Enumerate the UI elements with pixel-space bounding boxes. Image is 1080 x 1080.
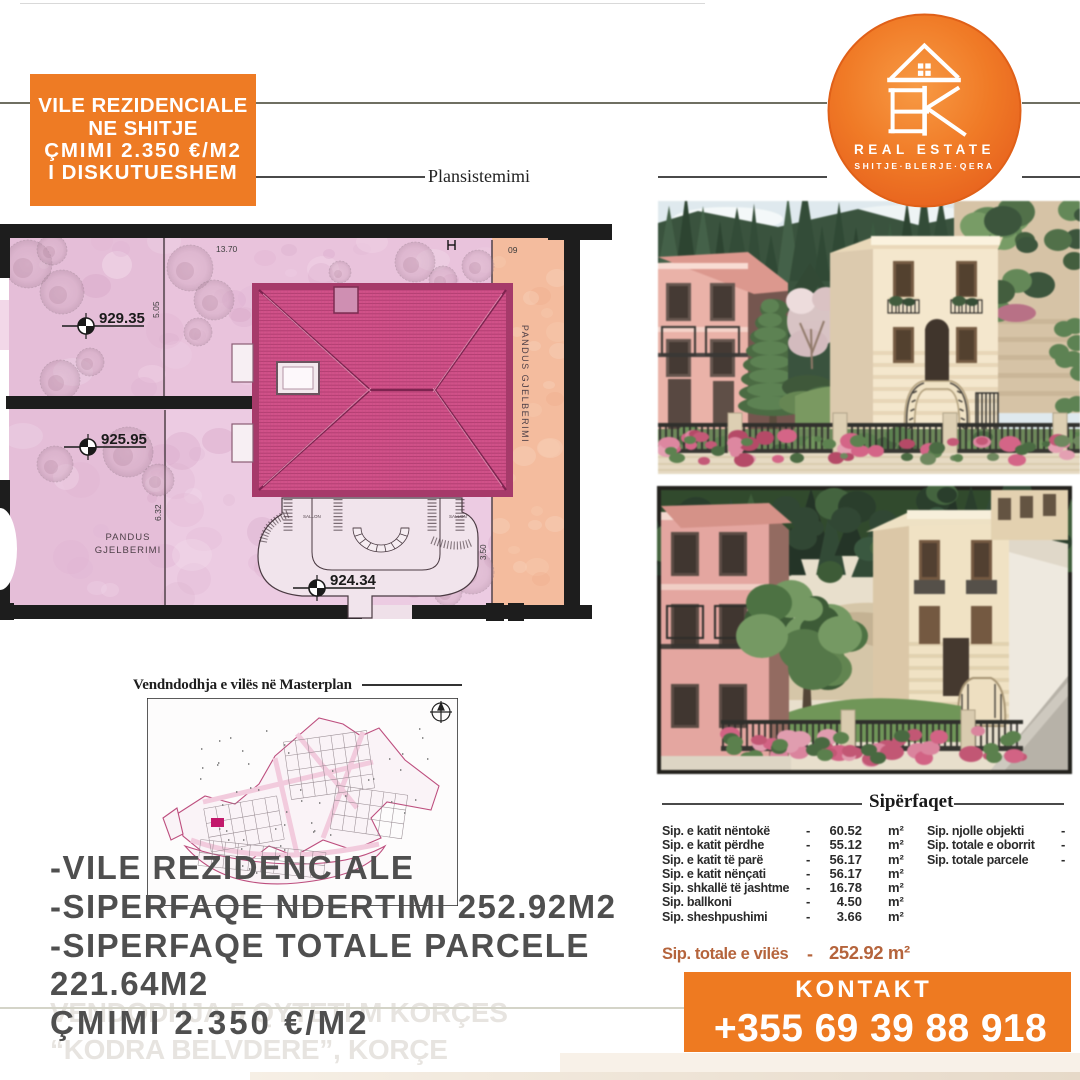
svg-text:5.05: 5.05 xyxy=(151,301,161,318)
svg-text:6.32: 6.32 xyxy=(153,504,163,521)
svg-text:13.70: 13.70 xyxy=(216,244,238,254)
svg-text:SHITJE·BLERJE·QERA: SHITJE·BLERJE·QERA xyxy=(854,161,994,171)
svg-text:09: 09 xyxy=(508,245,518,255)
svg-text:924.34: 924.34 xyxy=(330,572,377,589)
svg-text:929.35: 929.35 xyxy=(99,310,145,327)
svg-text:925.95: 925.95 xyxy=(101,431,147,448)
svg-text:SALLON: SALLON xyxy=(449,514,467,519)
svg-text:SALLON: SALLON xyxy=(303,514,321,519)
svg-text:3.50: 3.50 xyxy=(479,544,488,560)
svg-text:REAL ESTATE: REAL ESTATE xyxy=(854,142,995,157)
svg-text:PANDUS GJELBERIMI: PANDUS GJELBERIMI xyxy=(520,325,530,443)
svg-text:PANDUS: PANDUS xyxy=(106,532,151,543)
svg-text:GJELBERIMI: GJELBERIMI xyxy=(95,545,162,556)
